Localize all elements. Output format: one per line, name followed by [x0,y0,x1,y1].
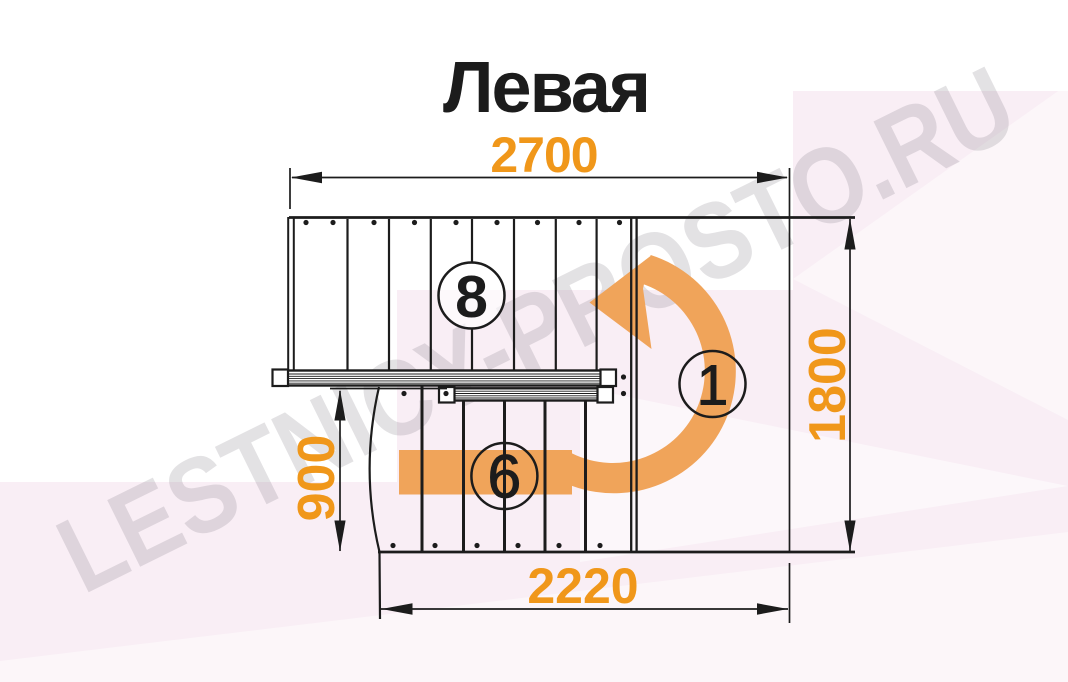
svg-text:900: 900 [288,435,346,522]
svg-text:2700: 2700 [490,127,597,183]
svg-text:8: 8 [455,264,488,330]
svg-text:2220: 2220 [527,558,638,614]
svg-text:Левая: Левая [443,48,649,128]
svg-text:1800: 1800 [799,327,857,443]
svg-text:6: 6 [487,443,521,511]
svg-text:1: 1 [697,354,729,418]
